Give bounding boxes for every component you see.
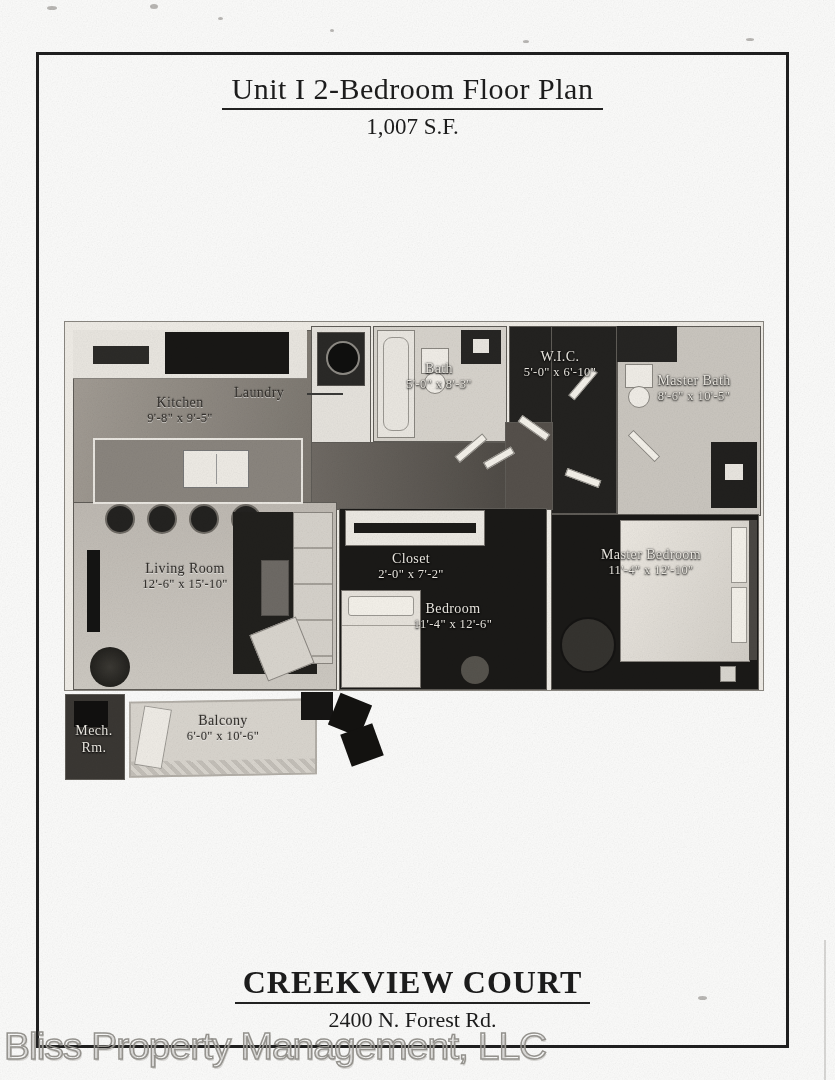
round-chair [560, 617, 616, 673]
washer-door [326, 341, 360, 375]
hallway-floor [311, 442, 509, 510]
scan-speck [330, 29, 334, 32]
closet-rod [354, 523, 476, 533]
master-shower [617, 326, 677, 362]
master-bed [620, 520, 750, 662]
square-footage: 1,007 S.F. [36, 114, 789, 140]
scan-speck [523, 40, 529, 43]
plant [90, 647, 130, 687]
scanned-floor-plan-page: Unit I 2-Bedroom Floor Plan 1,007 S.F. [0, 0, 835, 1080]
bar-stool [105, 504, 135, 534]
bar-stool [147, 504, 177, 534]
wic-label: W.I.C. 5'-0" x 6'-10" [505, 348, 615, 380]
sink-divider [216, 454, 217, 484]
master-bath-label: Master Bath 8'-6" x 10'-5" [631, 372, 757, 404]
page-edge-artifact [824, 940, 826, 1080]
balcony-table [301, 692, 333, 720]
page-title: Unit I 2-Bedroom Floor Plan [222, 72, 604, 110]
island-sink [183, 450, 249, 488]
stove [165, 332, 289, 374]
master-pillow [731, 587, 747, 643]
bar-stool [189, 504, 219, 534]
living-room-label: Living Room 12'-6" x 15'-10" [95, 560, 275, 592]
scan-speck [218, 17, 223, 20]
closet-label: Closet 2'-0" x 7'-2" [345, 550, 477, 582]
scan-speck [746, 38, 754, 41]
headboard [749, 520, 757, 660]
closet-front [345, 510, 485, 546]
mech-room-label: Mech. Rm. [67, 722, 121, 756]
nightstand [720, 666, 736, 682]
balcony-label: Balcony 6'-0" x 10'-6" [153, 712, 293, 744]
floor-plan: Kitchen 9'-8" x 9'-5" Laundry Bath 5'-0"… [65, 322, 765, 780]
bedroom-plant [461, 656, 489, 684]
watermark: Bliss Property Management, LLC [4, 1025, 546, 1068]
master-bedroom-label: Master Bedroom 11'-4" x 12'-10" [551, 546, 751, 578]
footer-block: CREEKVIEW COURT 2400 N. Forest Rd. [36, 964, 789, 1033]
laundry-leader-line [307, 393, 343, 395]
laundry-label: Laundry [213, 384, 305, 401]
scan-speck [47, 6, 57, 10]
washer [317, 332, 365, 386]
master-vanity [711, 442, 757, 508]
scan-speck [150, 4, 158, 9]
title-block: Unit I 2-Bedroom Floor Plan 1,007 S.F. [36, 72, 789, 140]
bath-label: Bath 5'-0" x 8'-3" [377, 360, 501, 392]
bedroom-label: Bedroom 11'-4" x 12'-6" [371, 600, 535, 632]
property-name: CREEKVIEW COURT [235, 964, 591, 1004]
bath-vanity [461, 330, 501, 364]
vanity-sink [473, 339, 489, 353]
cooktop [93, 346, 149, 364]
master-vanity-sink [725, 464, 743, 480]
